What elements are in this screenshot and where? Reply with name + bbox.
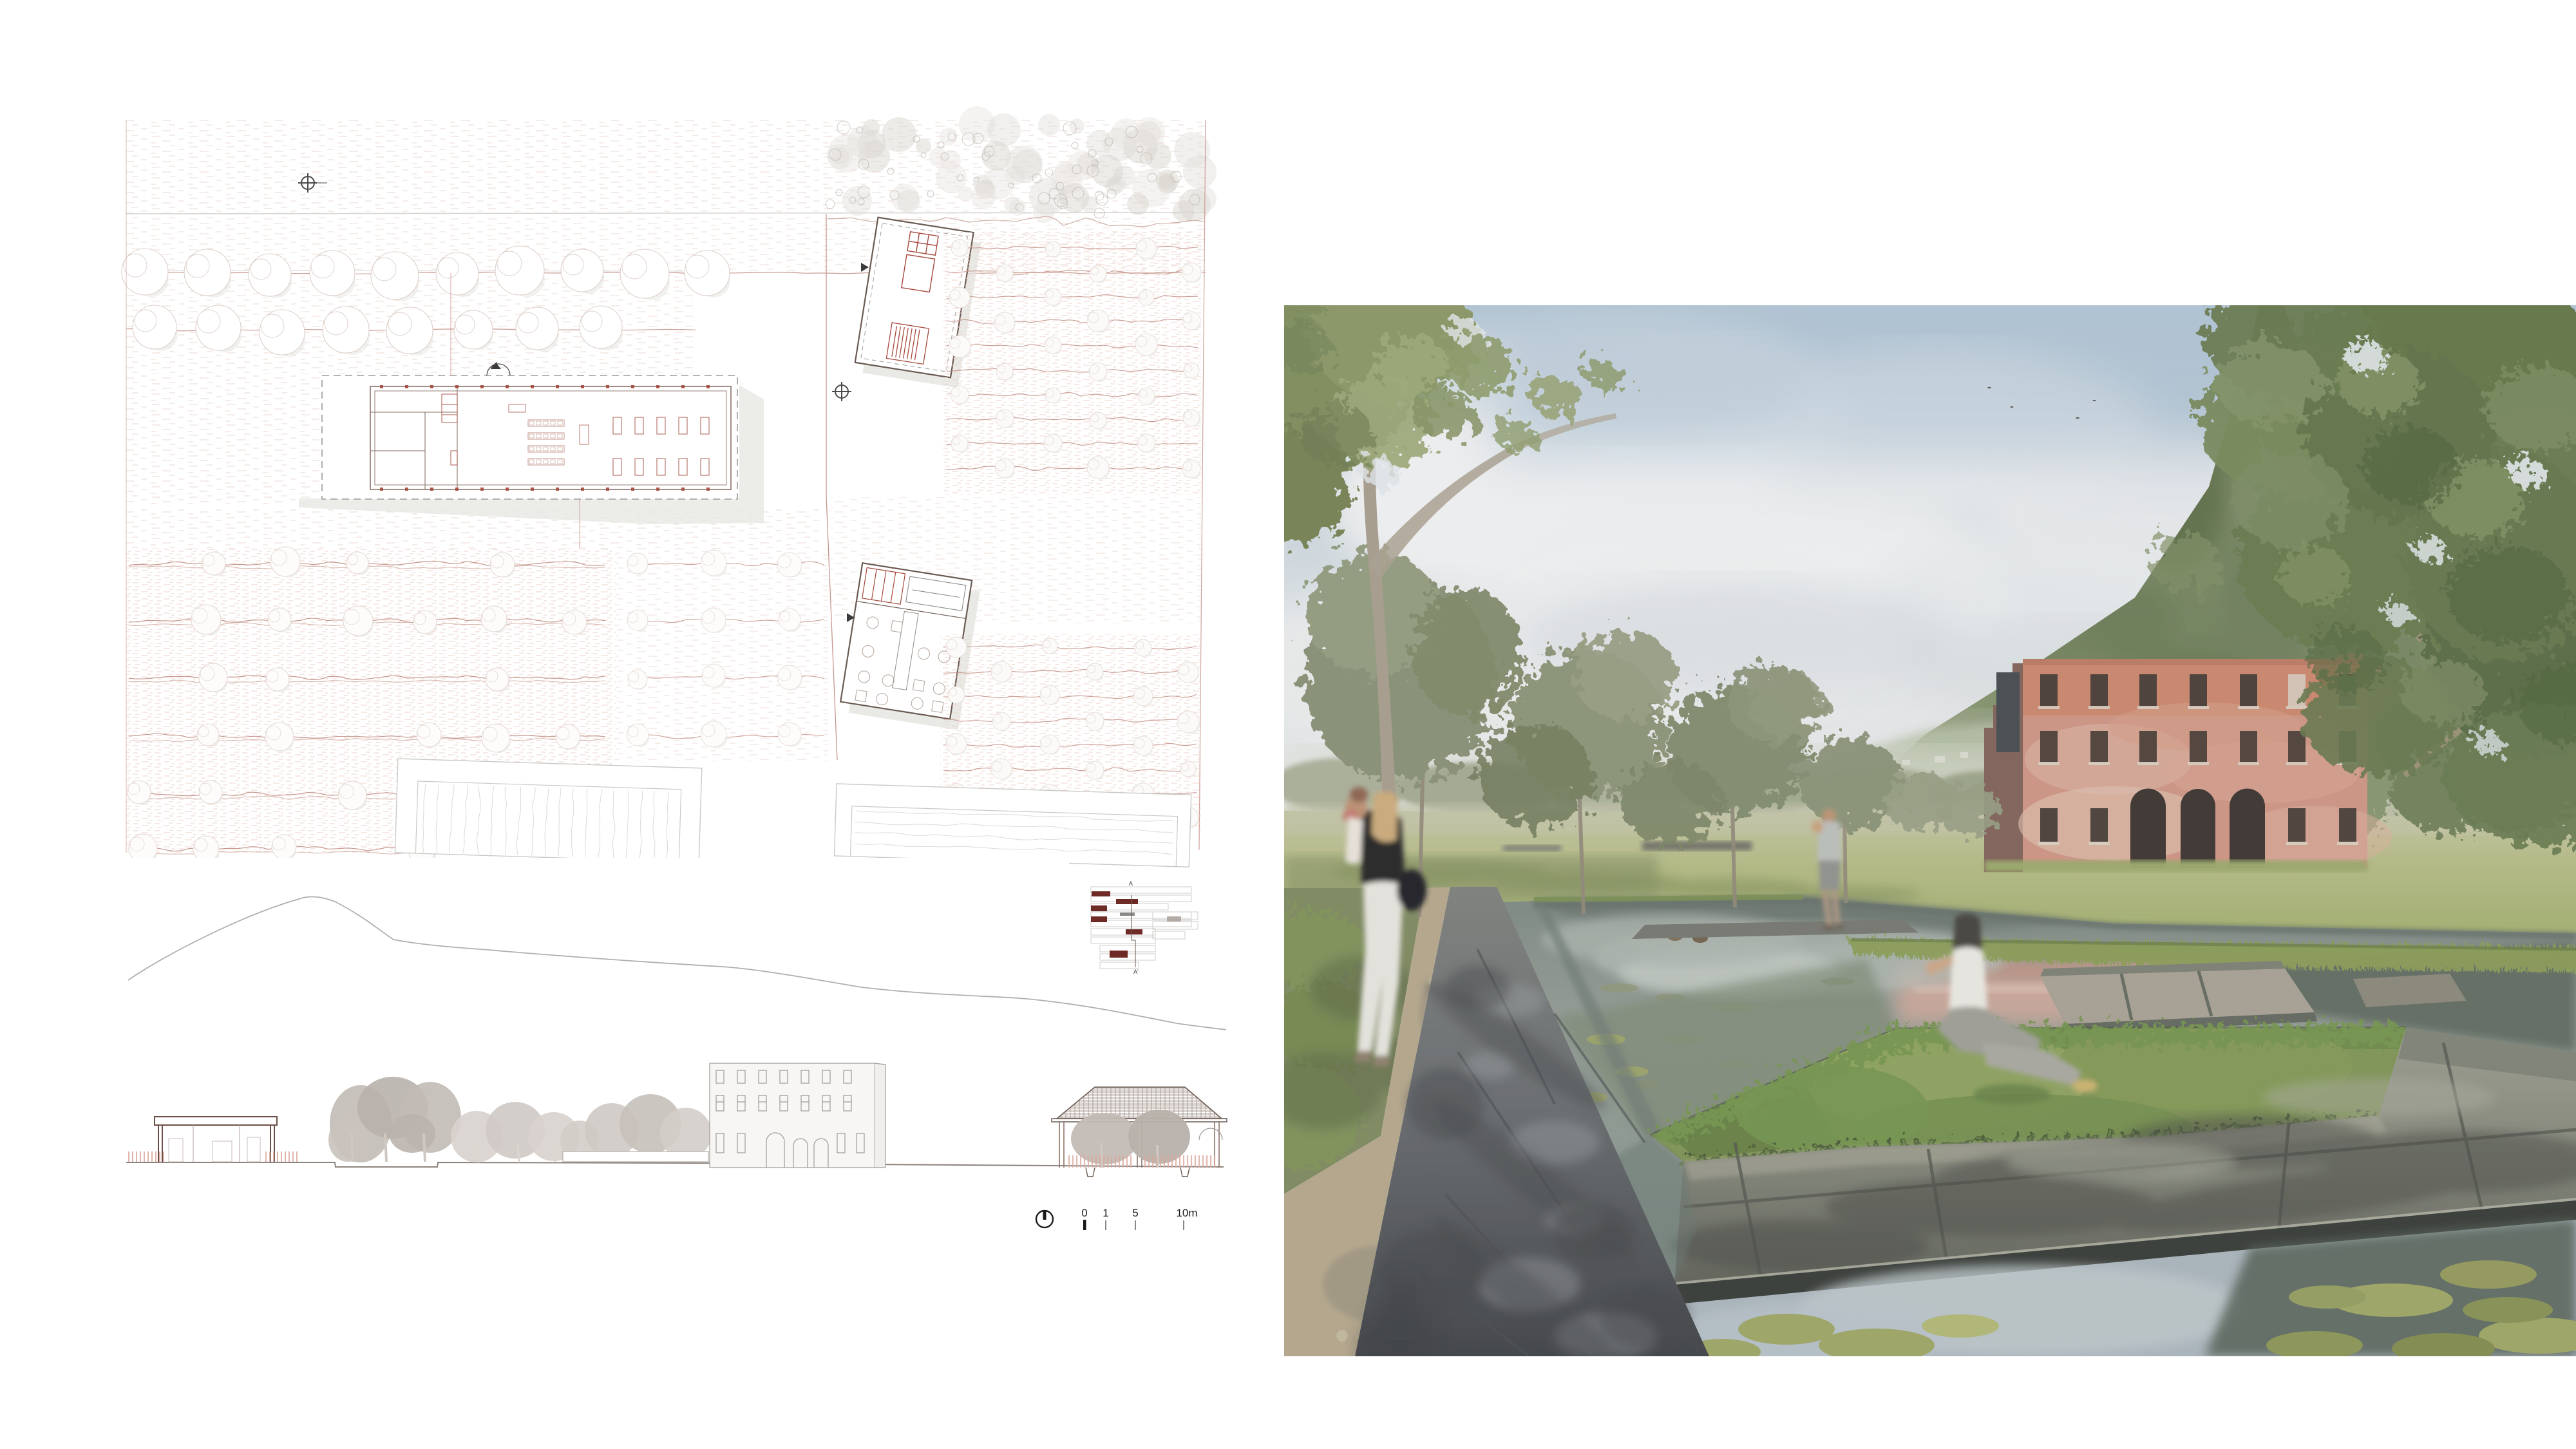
svg-text:5: 5 [1132, 1207, 1138, 1219]
svg-text:A': A' [1133, 969, 1139, 975]
svg-text:10m: 10m [1176, 1207, 1197, 1219]
svg-text:0: 0 [1081, 1207, 1087, 1219]
svg-text:1: 1 [1103, 1207, 1108, 1219]
svg-text:A: A [1129, 880, 1133, 887]
